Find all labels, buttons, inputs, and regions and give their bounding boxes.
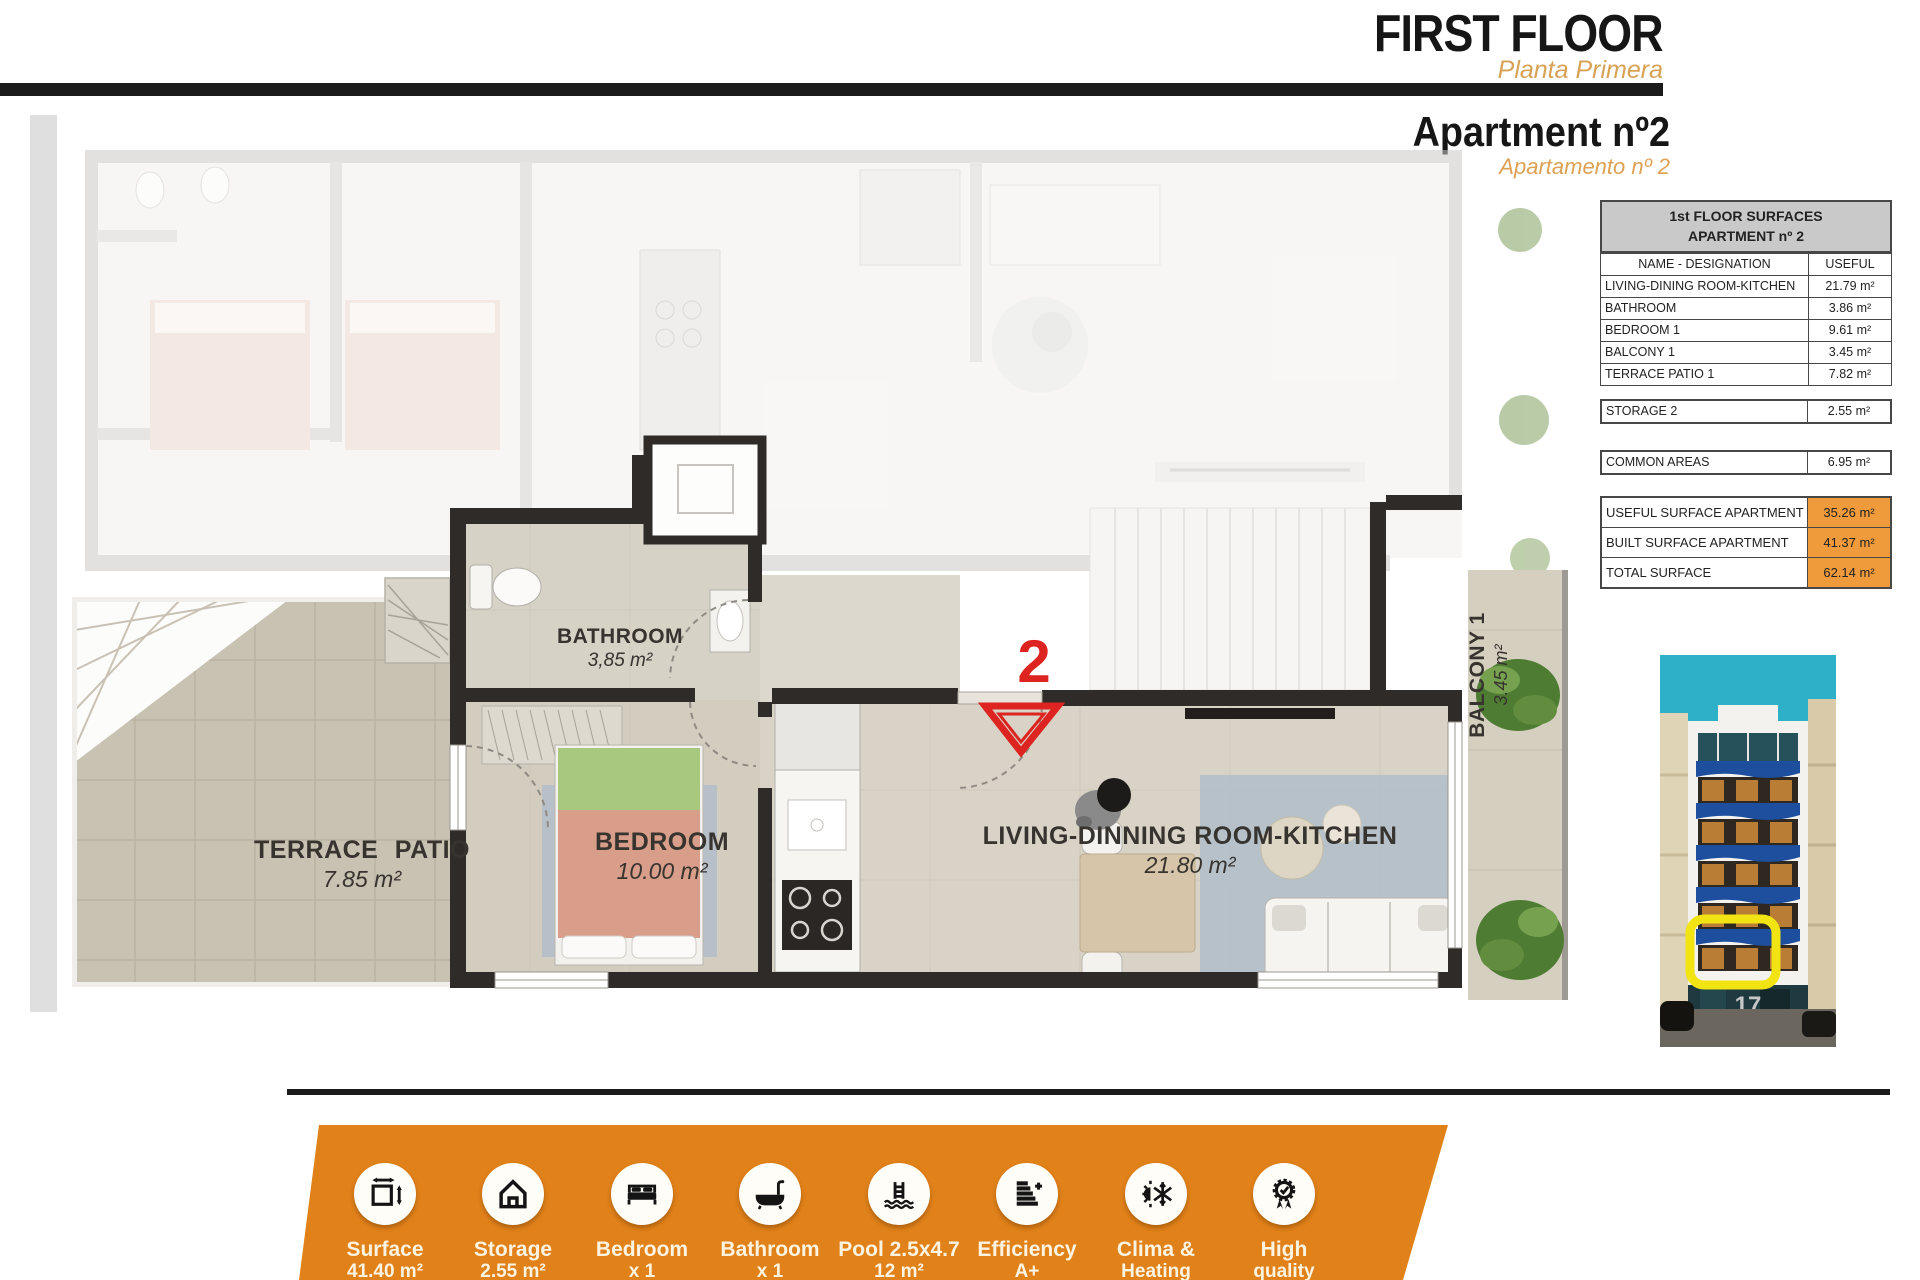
building-photo: 17 xyxy=(1660,655,1836,1047)
table-row: BEDROOM 1 9.61 m² xyxy=(1600,320,1892,342)
surface-measure-icon xyxy=(354,1163,416,1225)
quality-badge-icon xyxy=(1253,1163,1315,1225)
building-floors xyxy=(1696,761,1800,971)
table-row: BALCONY 1 3.45 m² xyxy=(1600,342,1892,364)
feature-clima: Clima & Heating xyxy=(1091,1163,1221,1280)
summary-row: TOTAL SURFACE 62.14 m² xyxy=(1602,557,1890,587)
summary-row: USEFUL SURFACE APARTMENT 35.26 m² xyxy=(1602,498,1890,527)
bed-icon xyxy=(611,1163,673,1225)
storage-house-icon xyxy=(482,1163,544,1225)
storage-shaft xyxy=(648,440,762,540)
surfaces-table: 1st FLOOR SURFACES APARTMENT nº 2 NAME -… xyxy=(1600,200,1892,589)
tv xyxy=(1185,708,1335,719)
feature-surface: Surface 41.40 m² xyxy=(320,1163,450,1280)
pool-ladder-icon xyxy=(868,1163,930,1225)
room-label-bathroom: BATHROOM 3,85 m² xyxy=(557,625,683,672)
car xyxy=(1802,1011,1836,1037)
table-row: STORAGE 2 2.55 m² xyxy=(1602,401,1890,422)
ghost-stairwell xyxy=(1090,508,1370,690)
sofa xyxy=(1265,898,1455,984)
features-banner: Surface 41.40 m² Storage 2.55 m² xyxy=(285,1120,1465,1280)
table-row: LIVING-DINING ROOM-KITCHEN 21.79 m² xyxy=(1600,276,1892,298)
toilet xyxy=(470,565,541,609)
summary-block: USEFUL SURFACE APARTMENT 35.26 m² BUILT … xyxy=(1600,496,1892,589)
kitchen-sink xyxy=(788,800,846,850)
feature-quality: High quality xyxy=(1219,1163,1349,1280)
feature-bedroom: Bedroom x 1 xyxy=(577,1163,707,1280)
bathtub-icon xyxy=(739,1163,801,1225)
page-title: FIRST FLOOR xyxy=(1374,4,1663,64)
room-label-terrace: TERRACE PATIO 7.85 m² xyxy=(254,836,470,893)
landing-floor xyxy=(760,575,960,702)
feature-efficiency: Efficiency A+ xyxy=(962,1163,1092,1280)
page-subtitle: Planta Primera xyxy=(1498,56,1663,85)
sun-snowflake-icon xyxy=(1125,1163,1187,1225)
table-header-row: NAME - DESIGNATION USEFUL xyxy=(1600,253,1892,276)
room-label-bedroom: BEDROOM 10.00 m² xyxy=(595,828,729,885)
storage-block: STORAGE 2 2.55 m² xyxy=(1600,399,1892,424)
room-label-living: LIVING-DINNING ROOM-KITCHEN 21.80 m² xyxy=(983,822,1398,879)
plan-left-strip xyxy=(30,115,57,1012)
room-label-balcony: BALCONY 1 3.45 m² xyxy=(1466,580,1512,770)
header-divider-bar xyxy=(0,83,1663,96)
feature-pool: Pool 2.5x4.7 12 m² xyxy=(834,1163,964,1280)
feature-storage: Storage 2.55 m² xyxy=(448,1163,578,1280)
energy-efficiency-icon xyxy=(996,1163,1058,1225)
kitchen-counter xyxy=(775,702,860,972)
terrace-patio xyxy=(72,578,453,987)
feature-bathroom: Bathroom x 1 xyxy=(705,1163,835,1280)
terrace-rack xyxy=(385,578,450,663)
unit-number-marker: 2 xyxy=(1002,632,1066,692)
brochure-page: FIRST FLOOR Planta Primera Apartment nº2… xyxy=(0,0,1920,1280)
common-areas-block: COMMON AREAS 6.95 m² xyxy=(1600,450,1892,475)
footer-divider-bar xyxy=(287,1089,1890,1095)
floor-plan xyxy=(30,110,1575,1060)
surfaces-table-title: 1st FLOOR SURFACES APARTMENT nº 2 xyxy=(1600,200,1892,253)
car xyxy=(1660,1001,1694,1031)
table-row: TERRACE PATIO 1 7.82 m² xyxy=(1600,364,1892,386)
table-row: COMMON AREAS 6.95 m² xyxy=(1602,452,1890,473)
table-row: BATHROOM 3.86 m² xyxy=(1600,298,1892,320)
summary-row: BUILT SURFACE APARTMENT 41.37 m² xyxy=(1602,527,1890,557)
